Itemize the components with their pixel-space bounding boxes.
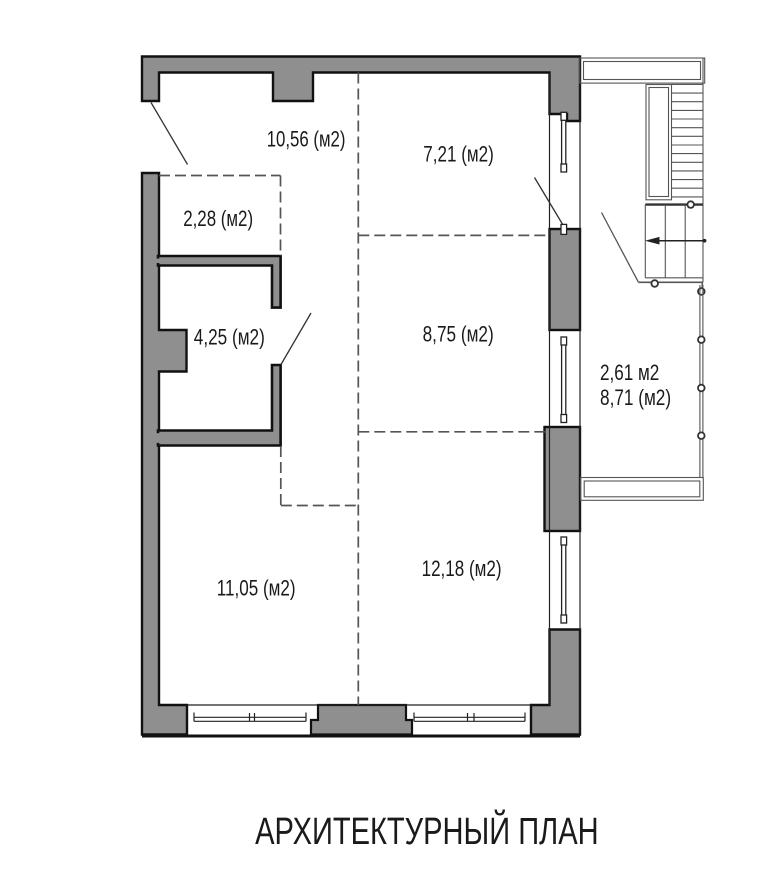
svg-text:10,56 (м2): 10,56 (м2) <box>267 127 346 152</box>
svg-text:АРХИТЕКТУРНЫЙ ПЛАН: АРХИТЕКТУРНЫЙ ПЛАН <box>255 810 598 852</box>
svg-text:4,25 (м2): 4,25 (м2) <box>194 325 265 350</box>
svg-text:2,61 м2: 2,61 м2 <box>600 360 659 385</box>
svg-text:12,18 (м2): 12,18 (м2) <box>422 556 502 581</box>
svg-text:11,05 (м2): 11,05 (м2) <box>217 576 296 601</box>
svg-text:7,21 (м2): 7,21 (м2) <box>423 142 494 167</box>
svg-text:8,71 (м2): 8,71 (м2) <box>600 385 671 410</box>
svg-text:8,75 (м2): 8,75 (м2) <box>423 322 494 347</box>
svg-text:2,28 (м2): 2,28 (м2) <box>183 206 253 231</box>
